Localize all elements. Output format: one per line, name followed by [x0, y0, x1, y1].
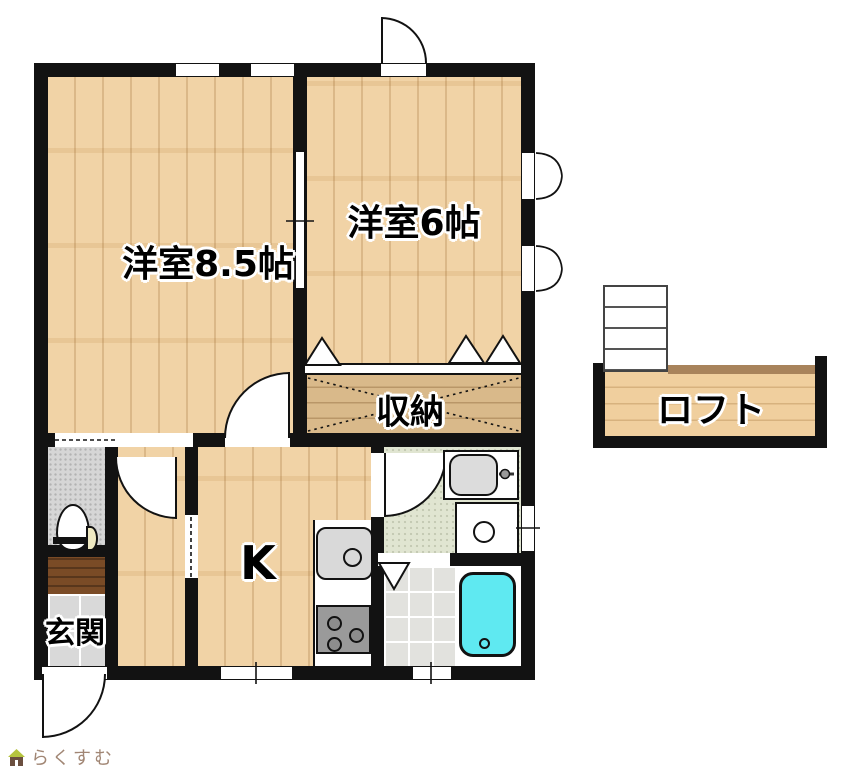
burner-icon: [349, 628, 364, 643]
window: [220, 666, 293, 680]
opening-dashed: [185, 515, 198, 578]
wash-basin-bowl: [449, 454, 498, 496]
bathroom-floor: [384, 566, 455, 666]
burner-icon: [327, 637, 342, 652]
stove-icon: [316, 605, 371, 654]
room-label-western85: 洋室8.5帖: [122, 235, 294, 287]
loft-edge-trim: [668, 365, 815, 374]
wall: [815, 356, 827, 448]
casement-window: [521, 152, 535, 200]
logo-text: らくすむ: [31, 744, 115, 770]
room-label-storage: 収納: [376, 385, 444, 434]
burner-icon: [327, 616, 342, 631]
loft-ladder-icon: [603, 285, 668, 372]
window: [175, 63, 220, 77]
window: [412, 666, 452, 680]
closet-front: [305, 363, 521, 375]
entrance-step: [48, 557, 105, 594]
door-opening: [371, 453, 384, 517]
site-logo: らくすむ: [8, 744, 115, 770]
room-label-western6: 洋室6帖: [347, 194, 480, 246]
room-label-loft: ロフト: [657, 381, 765, 433]
wall: [105, 557, 118, 666]
entrance-door-swing: [42, 674, 106, 738]
wall: [593, 436, 827, 448]
washing-machine-door: [473, 521, 495, 543]
door-swing: [381, 17, 427, 63]
floor-plan: 洋室8.5帖 洋室6帖 収納 K 玄関 ロフト らくすむ: [0, 0, 867, 774]
house-logo-icon: [8, 749, 25, 766]
window: [521, 505, 535, 552]
casement-window: [521, 245, 535, 292]
room-label-kitchen: K: [240, 536, 276, 590]
sliding-door: [294, 150, 306, 290]
window: [250, 63, 295, 77]
room-label-entrance: 玄関: [45, 608, 105, 652]
sink-faucet-icon: [343, 548, 362, 567]
bathtub-drain: [479, 638, 490, 649]
door-opening: [378, 553, 450, 566]
door-opening: [380, 63, 427, 77]
opening-dashed: [55, 433, 117, 447]
door-opening: [117, 433, 193, 447]
wall: [34, 63, 48, 680]
